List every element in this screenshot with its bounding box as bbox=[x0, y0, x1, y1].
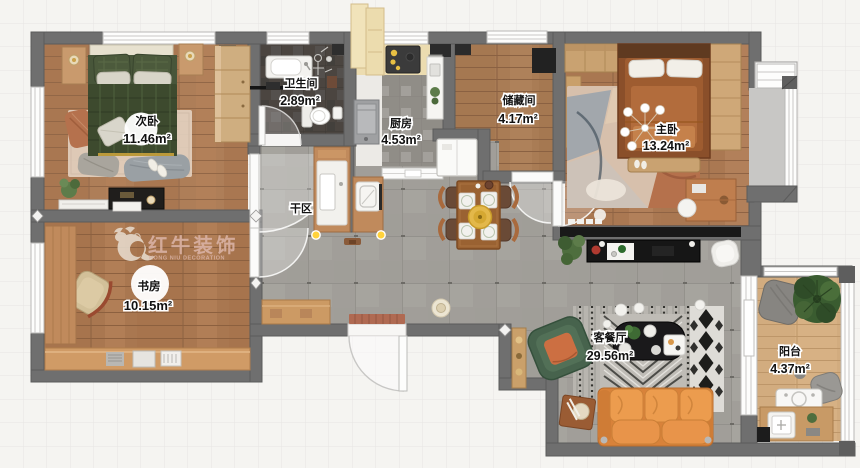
svg-text:阳台: 阳台 bbox=[779, 344, 801, 358]
svg-text:13.24m²: 13.24m² bbox=[643, 139, 690, 153]
svg-text:11.46m²: 11.46m² bbox=[123, 131, 171, 146]
svg-text:客餐厅: 客餐厅 bbox=[593, 330, 627, 344]
svg-text:4.17m²: 4.17m² bbox=[498, 112, 538, 126]
svg-text:10.15m²: 10.15m² bbox=[124, 298, 173, 313]
svg-text:29.56m²: 29.56m² bbox=[587, 349, 634, 363]
svg-text:次卧: 次卧 bbox=[136, 114, 159, 128]
svg-text:主卧: 主卧 bbox=[656, 122, 678, 136]
svg-text:干区: 干区 bbox=[290, 202, 312, 215]
svg-text:2.89m²: 2.89m² bbox=[280, 94, 320, 108]
svg-text:卫生间: 卫生间 bbox=[285, 76, 318, 90]
svg-text:书房: 书房 bbox=[138, 279, 161, 293]
svg-text:红牛装饰: 红牛装饰 bbox=[148, 234, 239, 257]
svg-text:储藏间: 储藏间 bbox=[503, 93, 536, 107]
svg-text:4.37m²: 4.37m² bbox=[770, 362, 810, 376]
svg-text:HONG NIU DECORATION: HONG NIU DECORATION bbox=[149, 256, 225, 262]
svg-text:4.53m²: 4.53m² bbox=[381, 133, 421, 147]
svg-text:厨房: 厨房 bbox=[390, 116, 412, 130]
